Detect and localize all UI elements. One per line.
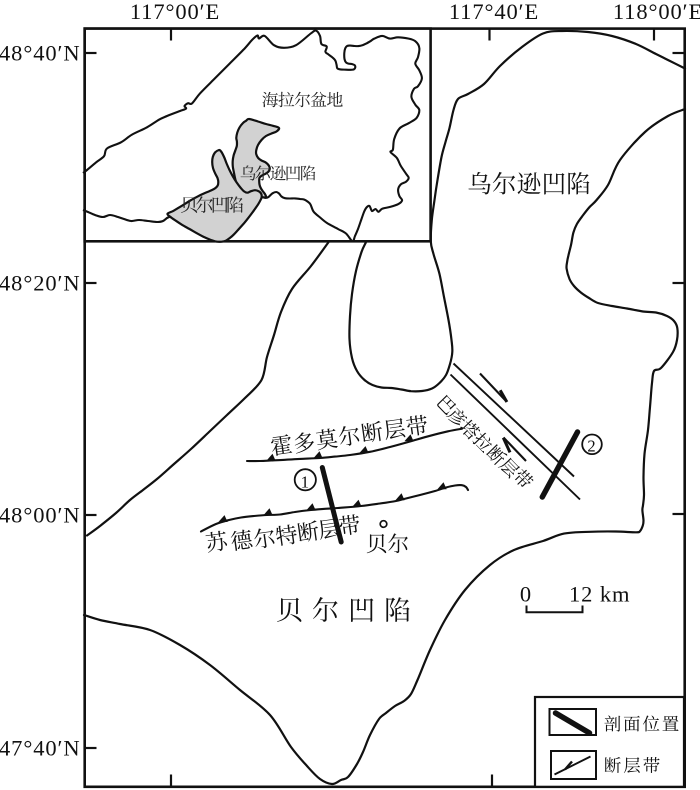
svg-text:47°40′N: 47°40′N: [0, 736, 81, 761]
svg-text:12 km: 12 km: [569, 582, 630, 607]
svg-text:1: 1: [301, 472, 310, 491]
svg-text:48°00′N: 48°00′N: [0, 503, 81, 528]
svg-text:48°40′N: 48°40′N: [0, 41, 81, 66]
svg-text:0: 0: [520, 582, 532, 607]
svg-text:48°20′N: 48°20′N: [0, 271, 81, 296]
svg-text:117°00′E: 117°00′E: [130, 0, 220, 24]
svg-text:118°00′E: 118°00′E: [613, 0, 700, 24]
svg-text:2: 2: [587, 436, 596, 455]
svg-text:117°40′E: 117°40′E: [449, 0, 539, 24]
